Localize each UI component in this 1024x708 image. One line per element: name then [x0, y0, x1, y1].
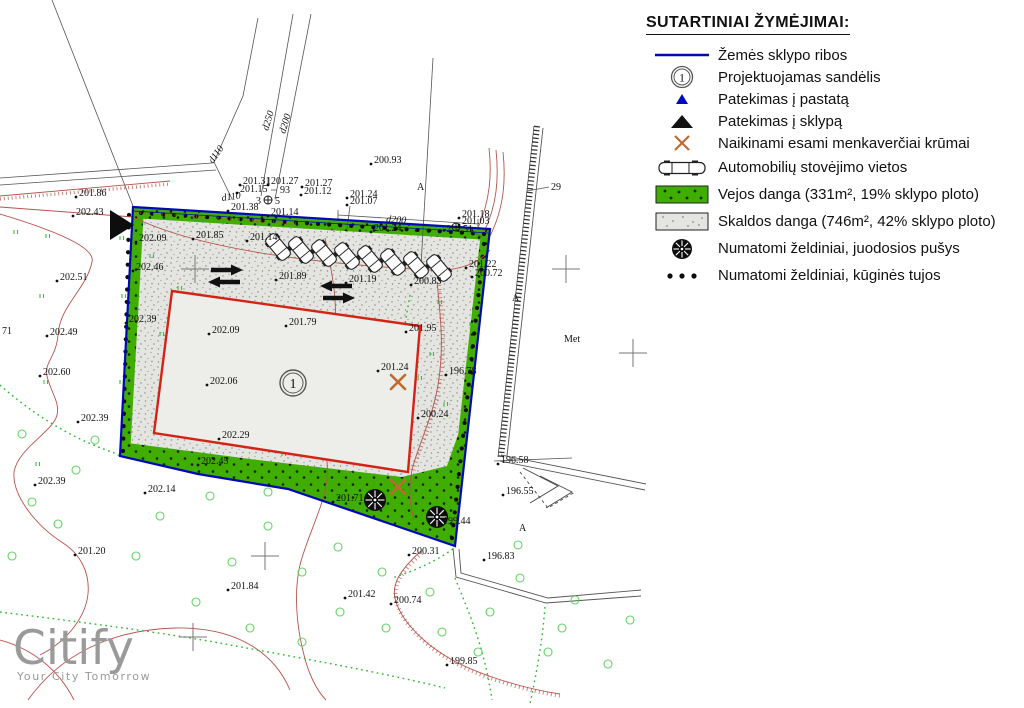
elevation-label: 202.49 [50, 327, 78, 338]
legend-item-thuja-dots: Numatomi želdiniai, kūginės tujos [646, 262, 1018, 289]
elevation-label: 201.84 [231, 581, 259, 592]
legend-item-label: Skaldos danga (746m², 42% sklypo ploto) [718, 213, 996, 230]
elevation-label: 201.14 [271, 207, 299, 218]
elevation-label: 202.06 [210, 376, 238, 387]
thuja-dots-icon [646, 271, 718, 281]
elevation-label: 201.89 [279, 271, 307, 282]
elevation-label: 201.95 [409, 323, 437, 334]
elevation-label: 201.12 [304, 186, 332, 197]
legend-item-label: Projektuojamas sandėlis [718, 69, 881, 86]
map-label: d200 [277, 113, 293, 135]
map-label: d250 [260, 110, 276, 132]
gravel-swatch-icon [646, 212, 718, 231]
map-label: A [512, 293, 520, 304]
elevation-label: 200.74 [394, 595, 422, 606]
legend-item-pine: Numatomi želdiniai, juodosios pušys [646, 235, 1018, 262]
elevation-label: 202.43 [76, 207, 104, 218]
elevation-label: 200.72 [475, 268, 503, 279]
lawn-swatch-icon [646, 185, 718, 204]
legend-item-label: Naikinami esami menkaverčiai krūmai [718, 135, 970, 152]
legend-item-gravel-swatch: Skaldos danga (746m², 42% sklypo ploto) [646, 208, 1018, 235]
legend: SUTARTINIAI ŽYMĖJIMAI: Žemės sklypo ribo… [646, 14, 1018, 289]
legend-item-label: Vejos danga (331m², 19% sklypo ploto) [718, 186, 979, 203]
elevation-label: 202.09 [212, 325, 240, 336]
elevation-label: 201.14 [250, 232, 278, 243]
elevation-label: 202.39 [129, 314, 157, 325]
pine-icon [646, 237, 718, 261]
elevation-label: 196.58 [501, 455, 529, 466]
map-label: d200 [386, 214, 407, 226]
elevation-label: 196.83 [487, 551, 515, 562]
site-plan-page: 1 200.93201.31201.27201.1593201.27201.12… [0, 0, 1024, 708]
elevation-label: 196.55 [506, 486, 534, 497]
elevation-label: 200.24 [421, 409, 449, 420]
elevation-label: 201.15 [240, 184, 268, 195]
legend-item-label: Patekimas į sklypą [718, 113, 842, 130]
boundary-line-icon [646, 50, 718, 60]
map-label: 5 [275, 196, 280, 207]
elevation-label: 202.60 [43, 367, 71, 378]
elevation-label: 202.29 [222, 430, 250, 441]
elevation-label: 201.20 [78, 546, 106, 557]
elevation-label: 200.93 [374, 155, 402, 166]
numbered-circle-icon: 1 [646, 64, 718, 90]
site-plan-drawing: 1 200.93201.31201.27201.1593201.27201.12… [0, 0, 700, 708]
elevation-label: 196.78 [449, 366, 477, 377]
elevation-label: 201.07 [350, 196, 378, 207]
legend-item-label: Automobilių stovėjimo vietos [718, 159, 907, 176]
map-label: A [519, 523, 527, 534]
elevation-label: 201.24 [381, 362, 409, 373]
elevation-label: 202.39 [38, 476, 66, 487]
elevation-label: 71 [2, 326, 12, 337]
legend-item-car: Automobilių stovėjimo vietos [646, 154, 1018, 181]
legend-item-lawn-swatch: Vejos danga (331m², 19% sklypo ploto) [646, 181, 1018, 208]
elevation-label: 201.79 [289, 317, 317, 328]
elevation-label: -2 [443, 224, 451, 235]
elevation-label: 201.19 [349, 274, 377, 285]
legend-item-black-triangle: Patekimas į sklypą [646, 110, 1018, 132]
building-number: 1 [290, 377, 297, 392]
map-label: 29 [551, 182, 561, 193]
map-label: A [417, 182, 425, 193]
elevation-label: 200.31 [412, 546, 440, 557]
legend-items: Žemės sklypo ribos1Projektuojamas sandėl… [646, 44, 1018, 289]
elevation-label: 201.71 [336, 493, 364, 504]
map-label: Met [564, 334, 580, 345]
legend-item-boundary-line: Žemės sklypo ribos [646, 44, 1018, 66]
elevation-label: 199.44 [443, 516, 471, 527]
elevation-label: 202.45 [201, 456, 229, 467]
legend-item-numbered-circle: 1Projektuojamas sandėlis [646, 66, 1018, 88]
car-icon [646, 158, 718, 178]
x-mark-icon [646, 134, 718, 152]
map-label: 3 [256, 196, 261, 207]
logo-name: Citify [13, 624, 151, 674]
elevation-label: 202.14 [148, 484, 176, 495]
legend-title: SUTARTINIAI ŽYMĖJIMAI: [646, 14, 850, 35]
elevation-label: 202.39 [81, 413, 109, 424]
elevation-label: 202.51 [60, 272, 88, 283]
svg-text:1: 1 [679, 71, 685, 85]
elevation-label: 201.42 [348, 589, 376, 600]
elevation-label: 202.46 [136, 262, 164, 273]
path-lines [453, 128, 646, 603]
logo: Citify Your City Tomorrow [13, 624, 151, 683]
elevation-label: 93 [280, 185, 290, 196]
elevation-label: 201.86 [79, 188, 107, 199]
blue-triangle-icon [646, 93, 718, 105]
black-triangle-icon [646, 114, 718, 129]
elevation-label: 200.83 [414, 276, 442, 287]
elevation-label: 202.09 [139, 233, 167, 244]
legend-item-label: Numatomi želdiniai, kūginės tujos [718, 267, 941, 284]
legend-item-x-mark: Naikinami esami menkaverčiai krūmai [646, 132, 1018, 154]
logo-tagline: Your City Tomorrow [17, 670, 151, 683]
map-label: d110 [206, 144, 226, 166]
elevation-label: 201.38 [231, 202, 259, 213]
legend-item-label: Numatomi želdiniai, juodosios pušys [718, 240, 960, 257]
elevation-label: 199.85 [450, 656, 478, 667]
legend-item-label: Žemės sklypo ribos [718, 47, 847, 64]
legend-item-blue-triangle: Patekimas į pastatą [646, 88, 1018, 110]
legend-item-label: Patekimas į pastatą [718, 91, 849, 108]
elevation-label: 51 [463, 224, 473, 235]
elevation-label: 201.85 [196, 230, 224, 241]
